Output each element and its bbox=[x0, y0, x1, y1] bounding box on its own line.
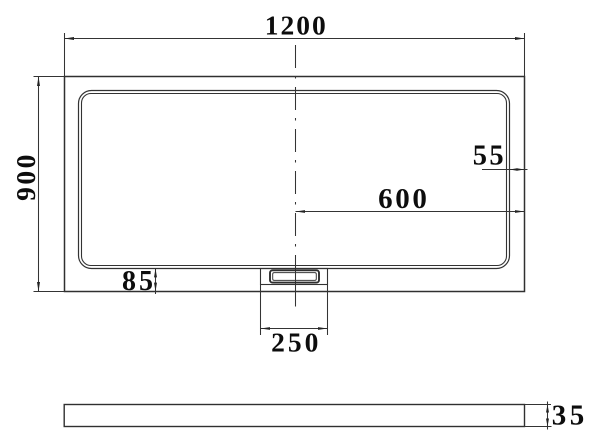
svg-text:900: 900 bbox=[10, 152, 41, 201]
svg-text:250: 250 bbox=[271, 327, 321, 358]
svg-text:35: 35 bbox=[552, 399, 588, 431]
svg-text:85: 85 bbox=[122, 266, 156, 297]
svg-text:1200: 1200 bbox=[265, 10, 328, 41]
svg-text:55: 55 bbox=[473, 141, 506, 172]
svg-text:600: 600 bbox=[378, 183, 429, 215]
